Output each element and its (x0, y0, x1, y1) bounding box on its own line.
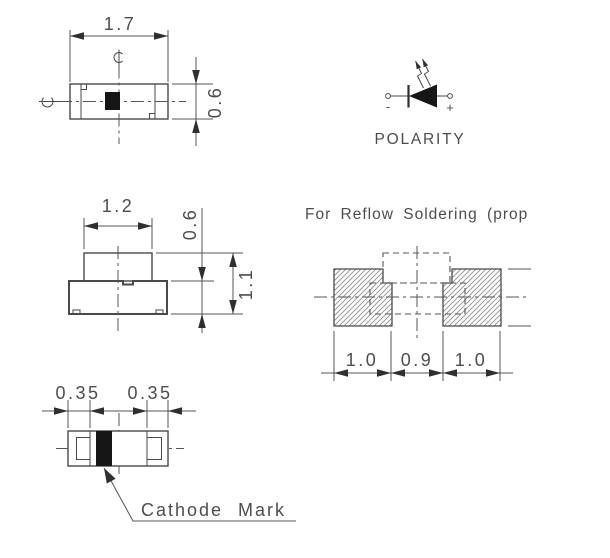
top-view: 1.7 0.6 (39, 14, 225, 146)
polarity-title: POLARITY (374, 131, 465, 148)
dim-right-terminal-label: 0.35 (127, 383, 172, 403)
led-diode-icon (386, 85, 453, 108)
side-view: 1.2 0.6 1.1 (69, 196, 256, 333)
dim-left-pad-label: 1.0 (346, 350, 379, 370)
dim-base-height-label: 0.6 (180, 208, 200, 241)
arrowhead (391, 369, 405, 377)
polarity-mark (105, 92, 120, 110)
arrowhead (198, 267, 206, 281)
arrowhead (486, 369, 500, 377)
dim-width-label: 1.7 (104, 14, 137, 34)
positive-terminal-node (448, 94, 453, 99)
arrowhead (334, 369, 348, 377)
light-emission-arrows-icon (413, 58, 430, 88)
centerline-symbol-icon (42, 98, 53, 107)
cathode-mark (96, 431, 112, 466)
dim-right-pad-label: 1.0 (455, 350, 488, 370)
arrowhead (54, 407, 68, 415)
arrowhead (229, 300, 237, 314)
arrowhead (154, 32, 168, 40)
arrowhead (429, 369, 443, 377)
arrowhead (138, 222, 152, 230)
arrowhead (198, 314, 206, 328)
package-bottom-outline (68, 431, 168, 466)
dim-gap-label: 0.9 (401, 350, 434, 370)
dim-left-terminal-label: 0.35 (55, 383, 100, 403)
dim-height-label: 0.6 (205, 86, 225, 119)
dim-lens-width-label: 1.2 (102, 196, 135, 216)
dim-total-height-label: 1.1 (236, 268, 256, 301)
arrowhead (133, 407, 147, 415)
arrowhead (192, 119, 200, 133)
centerline-symbol-icon (114, 50, 123, 66)
arrowhead (70, 32, 84, 40)
polarity-diagram: - + POLARITY (374, 58, 465, 148)
led-package-drawing: 1.7 0.6 (0, 0, 610, 558)
dimension-total-height: 1.1 (156, 253, 256, 314)
cathode-mark-label: Cathode Mark (141, 500, 286, 520)
dimension-lens-width: 1.2 (84, 196, 152, 249)
bottom-view: 0.35 0.35 Cathode Mark (42, 383, 296, 521)
dimension-pad-row: 1.0 0.9 1.0 (321, 331, 513, 381)
negative-terminal-node (386, 94, 391, 99)
arrowhead (229, 253, 237, 267)
technical-drawing-canvas: 1.7 0.6 (0, 0, 610, 558)
positive-sign-label: + (446, 100, 454, 115)
arrowhead (377, 369, 391, 377)
arrowhead (90, 407, 104, 415)
arrowhead (192, 70, 200, 84)
negative-sign-label: - (386, 99, 390, 114)
arrowhead (100, 466, 116, 484)
arrowhead (168, 407, 182, 415)
cathode-mark-callout: Cathode Mark (100, 466, 296, 521)
reflow-pad-layout: For Reflow Soldering (prop 1.0 0.9 1.0 (305, 206, 531, 381)
reflow-title: For Reflow Soldering (prop (305, 206, 528, 223)
arrowhead (84, 222, 98, 230)
arrowhead (443, 369, 457, 377)
